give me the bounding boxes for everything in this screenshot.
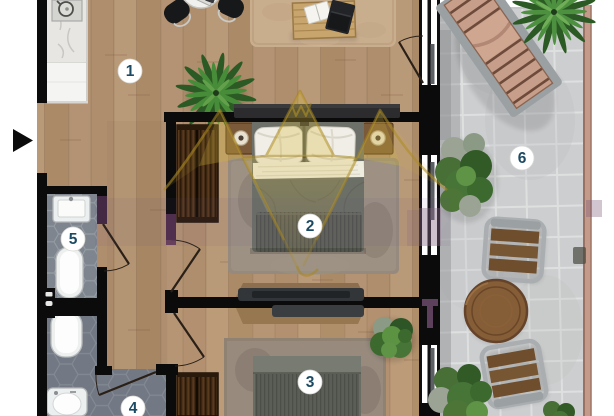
svg-text:4: 4 (129, 400, 138, 416)
svg-text:6: 6 (518, 150, 527, 167)
svg-text:3: 3 (306, 374, 315, 391)
svg-text:5: 5 (69, 231, 78, 248)
svg-text:1: 1 (126, 63, 135, 80)
svg-text:2: 2 (306, 218, 315, 235)
